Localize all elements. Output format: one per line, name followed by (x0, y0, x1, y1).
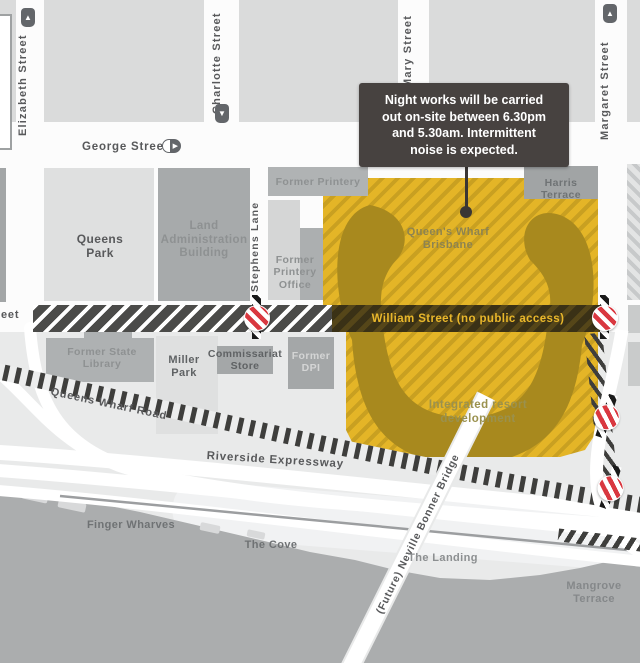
street-label-george: George Street (82, 141, 168, 153)
street-label-charlotte: Charlotte Street (211, 6, 223, 114)
place-label-queens-park: Queens Park (60, 232, 140, 260)
place-label-the-cove: The Cove (226, 539, 316, 552)
arrow-up-icon: ▲ (606, 10, 614, 18)
night-works-map: William Street (no public access) Elizab… (0, 0, 640, 663)
william-street-closed-label: William Street (no public access) (372, 313, 565, 325)
place-label-mangrove-terrace: Mangrove Terrace (558, 580, 630, 606)
no-entry-circle-icon (244, 305, 270, 331)
one-way-right-icon: ▶ (162, 139, 181, 153)
place-label-the-landing: The Landing (388, 552, 498, 565)
place-label-integrated-resort: Integrated resort development (398, 399, 558, 426)
one-way-up-icon: ▲ (603, 4, 617, 23)
william-street-closure-band (33, 305, 332, 332)
night-works-callout: Night works will be carried out on-site … (359, 83, 569, 167)
place-label-commissariat-store: Commissariat Store (201, 348, 289, 373)
place-label-former-printery: Former Printery (270, 176, 366, 188)
arrow-up-icon: ▲ (24, 14, 32, 22)
place-label-finger-wharves: Finger Wharves (66, 519, 196, 532)
street-label-mary: Mary Street (402, 4, 414, 88)
one-way-down-icon: ▼ (215, 104, 229, 123)
no-entry-circle-icon (592, 305, 618, 331)
one-way-up-icon: ▲ (21, 8, 35, 27)
no-entry-icon (243, 295, 269, 339)
callout-pointer-dot (460, 206, 472, 218)
arrow-right-icon: ▶ (173, 143, 178, 150)
place-label-former-state-library: Former State Library (54, 346, 150, 371)
arrow-down-icon: ▼ (218, 110, 226, 118)
callout-pointer-line (465, 161, 468, 208)
place-label-land-administration: Land Administration Building (158, 220, 250, 261)
no-entry-icon (591, 295, 617, 339)
street-label-elizabeth: Elizabeth Street (17, 24, 29, 136)
place-label-queens-wharf-brisbane: Queen's Wharf Brisbane (388, 226, 508, 252)
street-label-margaret: Margaret Street (599, 30, 611, 140)
place-label-former-dpi: Former DPI (289, 350, 333, 375)
street-label-william-fragment: eet (1, 309, 19, 321)
place-label-harris-terrace: Harris Terrace (524, 177, 598, 202)
place-label-former-printery-office: Former Printery Office (262, 254, 328, 291)
william-street-closed-section: William Street (no public access) (332, 305, 604, 332)
street-label-stephens-lane: Stephens Lane (249, 182, 261, 292)
